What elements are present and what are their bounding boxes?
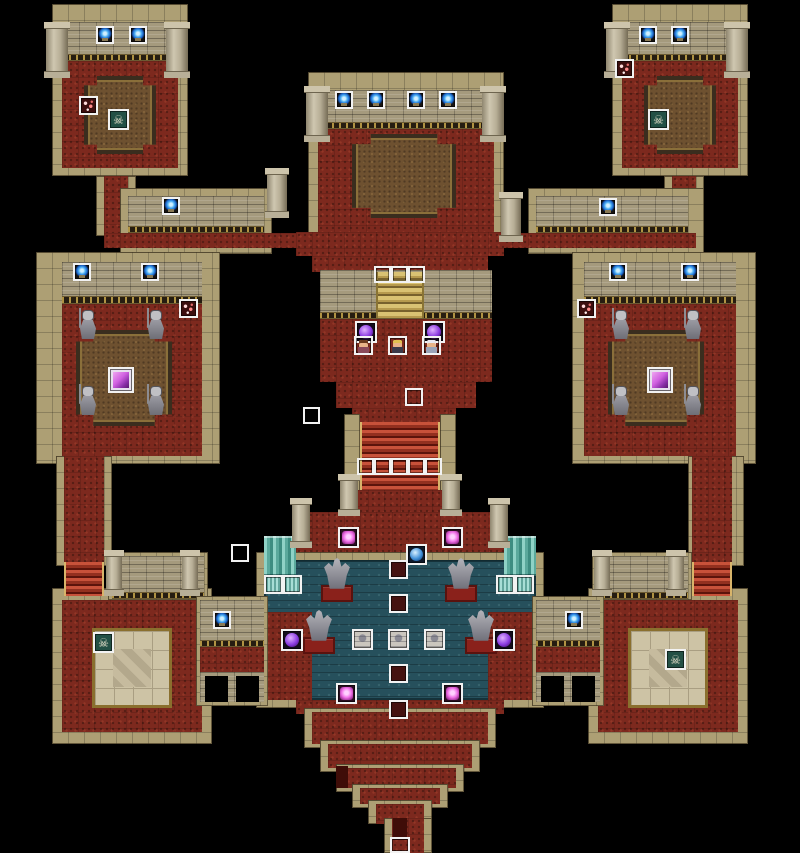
torch-room-mr-2[interactable] [681,263,699,281]
marker-dark-4[interactable] [389,700,408,719]
statue-mr-4 [682,384,704,416]
pillar-descent-l2 [182,550,198,596]
statue-mr-1 [610,308,632,340]
torch-pool-corr-right[interactable] [565,611,583,629]
pillar-descent-r2 [668,550,684,596]
pool-corr-left-door1 [205,676,228,702]
pillar-descent-r1 [594,550,610,596]
npc-left[interactable] [354,336,373,355]
stair-marker-5[interactable] [425,458,442,475]
torch-corridor-left[interactable] [162,197,180,215]
hall-upper-floor [296,232,504,256]
tablet-3[interactable] [424,629,445,650]
marker-dark-2[interactable] [389,594,408,613]
fountain-top-left [318,558,356,602]
crystal-pool-top-left[interactable] [338,527,359,548]
pillar-hall-left [267,168,287,218]
statue-ml-4 [145,384,167,416]
torch-room-ml-1[interactable] [73,263,91,281]
fountain-top-right [442,558,480,602]
pillar-tm-right [482,86,504,142]
water-tile-l1[interactable] [264,575,283,594]
pillar-tl-left [46,22,68,78]
skull-room-br[interactable] [665,649,686,670]
marker-dark-3[interactable] [389,664,408,683]
corridor-left-wall [128,196,264,226]
torch-room-tl-1[interactable] [96,26,114,44]
marker-above-stairs[interactable] [405,388,423,406]
pool-corr-right-floor [536,647,600,672]
pillar-stairs-left [340,474,358,516]
torch-room-mr-1[interactable] [609,263,627,281]
npc-center[interactable] [388,336,407,355]
crystal-pool-bot-left[interactable] [336,683,357,704]
skull-room-tl[interactable] [108,109,129,130]
sparkle-room-tr[interactable] [615,59,634,78]
pillar-tm-left [306,86,328,142]
corridor-right-frieze [536,226,688,233]
room-tm-frieze [318,122,494,129]
exit-bottom-marker[interactable] [390,837,410,853]
crystal-room-ml[interactable] [108,367,134,393]
stair-marker-2[interactable] [374,458,391,475]
statue-ml-3 [77,384,99,416]
torch-room-tm-4[interactable] [439,91,457,109]
descent-left-stairs [64,562,104,596]
gate-marker-2[interactable] [391,266,408,283]
torch-room-tr-1[interactable] [639,26,657,44]
orb-pool-left[interactable] [281,629,303,651]
gate-marker-1[interactable] [374,266,391,283]
skull-room-bl[interactable] [93,632,114,653]
orb-pool-right[interactable] [493,629,515,651]
torch-corridor-right[interactable] [599,198,617,216]
stairs-landing [352,490,448,512]
marker-void-pool[interactable] [231,544,249,562]
central-stairs [360,422,440,490]
marker-void-left[interactable] [303,407,320,424]
crystal-pool-bot-right[interactable] [442,683,463,704]
water-tile-l2[interactable] [283,575,302,594]
exit-door-shadow1 [336,766,348,788]
game-map: Castle dungeon tile map with torchlit ha… [0,0,800,853]
sparkle-room-tl[interactable] [79,96,98,115]
orb-blue-pool[interactable] [406,544,427,565]
pool-corr-right-door1 [541,676,564,702]
room-tr-frieze [622,54,738,61]
npc-right[interactable] [422,336,441,355]
room-tl-wall [62,22,178,54]
crystal-room-mr[interactable] [647,367,673,393]
corridor-left-floor [104,233,320,248]
pool-corr-right-frieze [536,640,600,647]
room-mr-frieze [584,296,736,304]
sparkle-room-mr[interactable] [577,299,596,318]
stair-marker-4[interactable] [408,458,425,475]
torch-room-tl-2[interactable] [129,26,147,44]
descent-right-floor [692,456,732,564]
pillar-tr-right [726,22,748,78]
torch-room-tm-1[interactable] [335,91,353,109]
pool-corr-right-door2 [572,676,595,702]
pool-corr-left-door2 [236,676,259,702]
statue-ml-2 [145,308,167,340]
water-tile-r2[interactable] [515,575,534,594]
stair-marker-3[interactable] [391,458,408,475]
pool-corr-left-frieze [200,640,264,647]
statue-mr-2 [682,308,704,340]
corridor-left-frieze [128,226,264,233]
statue-mr-3 [610,384,632,416]
statue-ml-1 [77,308,99,340]
torch-room-tm-3[interactable] [407,91,425,109]
pool-corr-left-wall [200,600,264,640]
torch-room-tr-2[interactable] [671,26,689,44]
room-mr-wall [584,262,736,296]
pillar-hall-right [501,192,521,242]
stair-marker-1[interactable] [357,458,374,475]
pillar-tl-right [166,22,188,78]
descent-left-floor [64,456,104,564]
pillar-stairs-right [442,474,460,516]
skull-room-tr[interactable] [648,109,669,130]
gate-marker-3[interactable] [408,266,425,283]
water-tile-r1[interactable] [496,575,515,594]
room-tm-platform [352,134,456,218]
pillar-pool-right [490,498,508,548]
marker-dark-1[interactable] [389,560,408,579]
tablet-1[interactable] [352,629,373,650]
fountain-bottom-left [300,610,338,654]
pillar-pool-left [292,498,310,548]
torch-room-tm-2[interactable] [367,91,385,109]
descent-right-stairs [692,562,732,596]
sparkle-room-ml[interactable] [179,299,198,318]
torch-pool-corr-left[interactable] [213,611,231,629]
torch-room-ml-2[interactable] [141,263,159,281]
tablet-2[interactable] [388,629,409,650]
room-tl-frieze [62,54,178,61]
pillar-descent-l1 [106,550,122,596]
pool-corr-left-floor [200,647,264,672]
crystal-pool-top-right[interactable] [442,527,463,548]
